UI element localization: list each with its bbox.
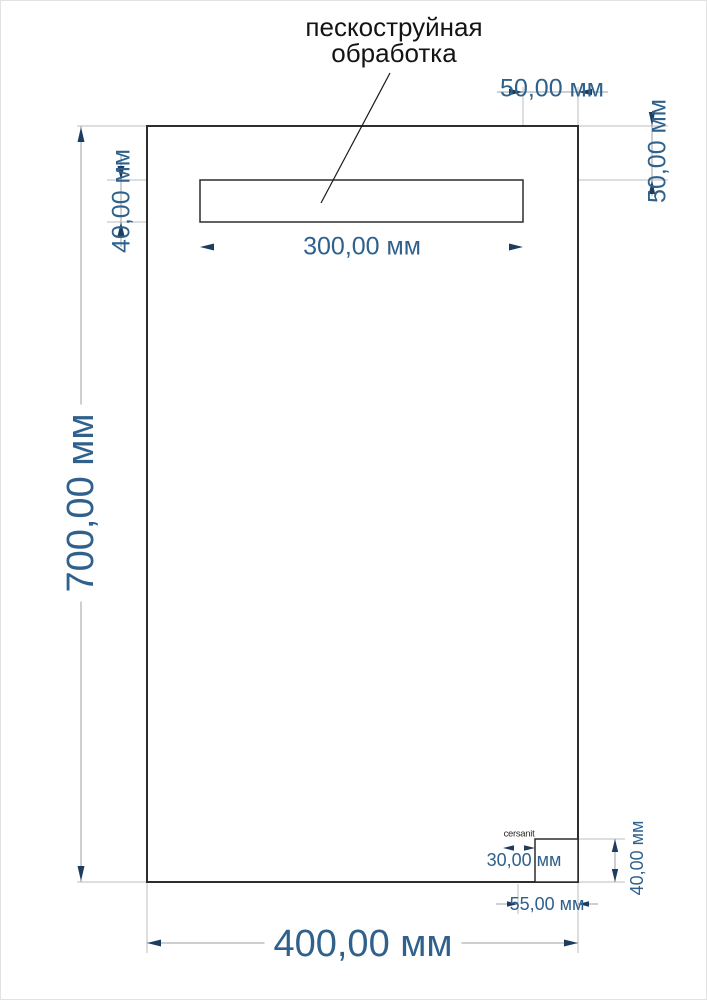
arrow-icon [564,940,578,947]
arrow-icon [78,866,85,881]
sandblast-annotation-line1: пескоструйная [305,14,482,40]
arrow-icon [612,839,618,852]
dim-mirror-height: 700,00 мм [62,404,100,601]
dim-strip-offset-right: 50,00 мм [500,77,604,102]
arrow-icon [78,127,85,142]
dim-logo-offset-bottom: 40,00 мм [628,821,646,896]
dim-mirror-width: 400,00 мм [264,925,461,963]
dim-logo-width: 30,00 мм [487,851,562,869]
arrow-icon [612,869,618,882]
arrow-icon [147,940,161,947]
drawing-linework [0,0,707,1000]
sandblast-annotation: пескоструйная обработка [305,14,482,66]
mirror-technical-drawing: пескоструйная обработка 700,00 мм 400,00… [0,0,707,1000]
dim-strip-offset-top: 50,00 мм [646,99,671,203]
dim-strip-width: 300,00 мм [294,235,430,260]
sandblast-strip [200,180,523,222]
cersanit-logo: cersanit [504,829,535,840]
dim-strip-height: 40,00 мм [110,149,135,253]
sandblast-annotation-line2: обработка [305,40,482,66]
dim-logo-offset-right: 55,00 мм [510,895,585,913]
